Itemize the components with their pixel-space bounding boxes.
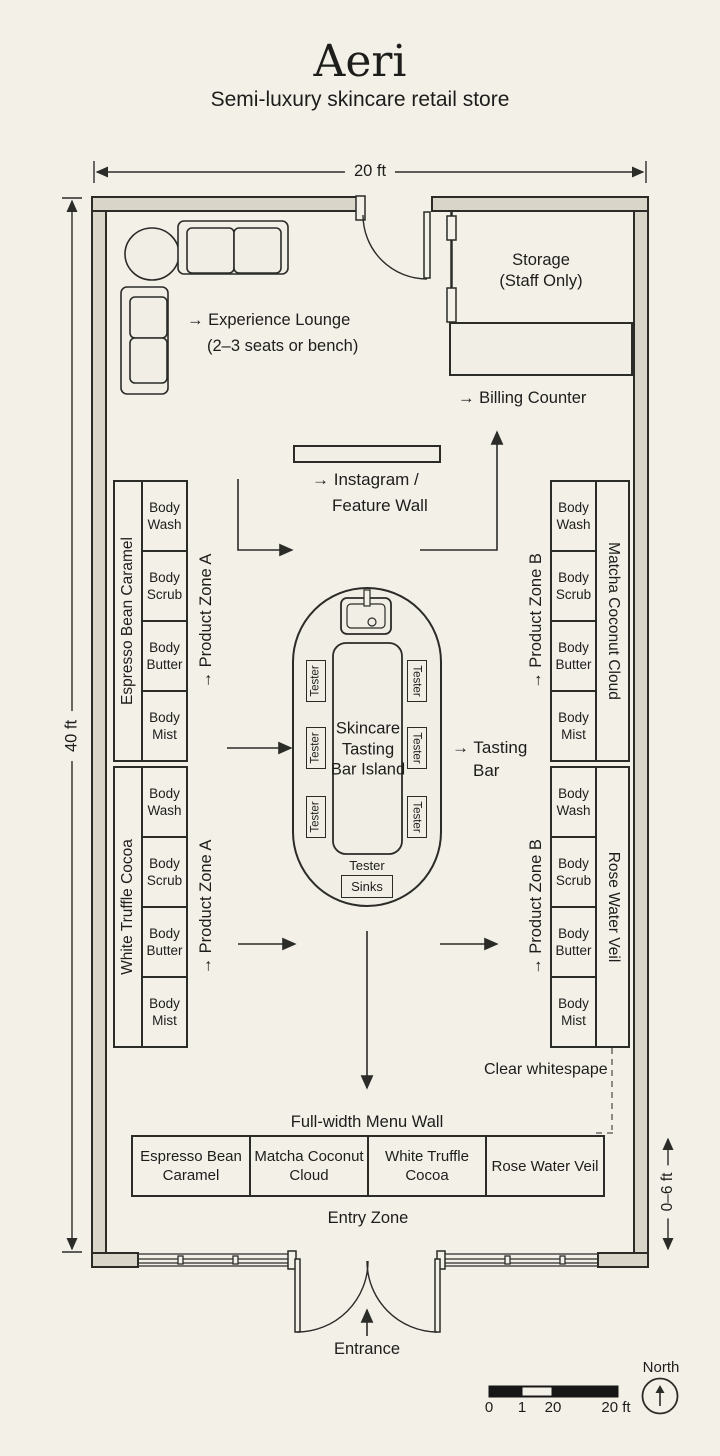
experience-lounge-line1: → Experience Lounge: [187, 307, 358, 333]
product-zone-b-label-bottom: → Product Zone B: [523, 839, 549, 975]
menu-wall-cell: Espresso Bean Caramel: [133, 1137, 249, 1195]
brand-column: Matcha Coconut Cloud: [595, 482, 628, 760]
shelf-cell: Body Wash: [552, 482, 595, 550]
shelf-cell: Body Butter: [552, 620, 595, 690]
wall-bottom-left-block: [92, 1253, 138, 1267]
shelf-cell: Body Butter: [552, 906, 595, 976]
island-label-line3: Bar Island: [331, 759, 405, 780]
brand-column: White Truffle Cocoa: [115, 768, 143, 1046]
experience-lounge-label: → Experience Lounge (2–3 seats or bench): [187, 307, 358, 359]
scale-bar: [489, 1386, 618, 1397]
experience-lounge-line2: (2–3 seats or bench): [207, 333, 358, 359]
page-title: Aeri: [314, 38, 407, 86]
storage-line1: Storage: [499, 250, 582, 271]
scale-tick-20ft: 20 ft: [601, 1399, 630, 1416]
feature-wall-shape: [294, 446, 440, 462]
product-zone-b-label-top: → Product Zone B: [523, 553, 549, 689]
tester-label: Tester: [411, 801, 423, 832]
sofa-cushion: [187, 228, 234, 273]
feature-wall-line2: Feature Wall: [332, 493, 428, 519]
sofa-cushion: [130, 297, 167, 338]
brand-label: Rose Water Veil: [604, 852, 622, 963]
shelf-cell: Body Scrub: [143, 550, 186, 620]
tasting-bar-label: → Tasting Bar: [452, 736, 527, 782]
menu-wall-cell: Rose Water Veil: [485, 1137, 603, 1195]
shelf-cell: Body Mist: [552, 976, 595, 1046]
flow-arrow-lounge-to-right: [238, 479, 292, 550]
tasting-bar-line2: Bar: [473, 759, 527, 782]
shelf-cell: Body Butter: [143, 620, 186, 690]
wall-left: [92, 197, 106, 1267]
tester-label: Tester: [310, 801, 322, 832]
tester-label: Tester: [411, 665, 423, 696]
shelf-cell: Body Wash: [143, 768, 186, 836]
shelf-unit-matcha-coconut-cloud: Body Wash Body Scrub Body Butter Body Mi…: [550, 480, 630, 762]
tester-box: Tester: [306, 796, 326, 838]
storage-door-jamb-1: [447, 216, 456, 240]
shelf-cell: Body Scrub: [552, 836, 595, 906]
product-zone-a-label-bottom: → Product Zone A: [193, 840, 219, 975]
tester-box: Tester: [407, 796, 427, 838]
storage-room: [447, 211, 632, 375]
brand-column: Espresso Bean Caramel: [115, 482, 143, 760]
shelf-cell: Body Scrub: [552, 550, 595, 620]
shelf-cell: Body Scrub: [143, 836, 186, 906]
scale-tick-0: 0: [485, 1399, 493, 1416]
shelf-unit-rose-water-veil: Body Wash Body Scrub Body Butter Body Mi…: [550, 766, 630, 1048]
shelf-unit-espresso-bean-caramel: Espresso Bean Caramel Body Wash Body Scr…: [113, 480, 188, 762]
brand-label: Espresso Bean Caramel: [119, 537, 137, 705]
brand-label: Matcha Coconut Cloud: [604, 542, 622, 700]
service-door: [356, 196, 430, 279]
tester-box: Tester: [306, 727, 326, 769]
shelf-cells: Body Wash Body Scrub Body Butter Body Mi…: [143, 768, 186, 1046]
wall-bottom-right-block: [598, 1253, 648, 1267]
feature-wall-line1: → Instagram /: [312, 467, 428, 493]
menu-wall-cell: Matcha Coconut Cloud: [249, 1137, 367, 1195]
scale-tick-20: 20: [545, 1399, 562, 1416]
wall-top-right-segment: [432, 197, 648, 211]
storefront-window-right: [437, 1251, 598, 1269]
shelf-cell: Body Mist: [552, 690, 595, 760]
shelf-cells: Body Wash Body Scrub Body Butter Body Mi…: [552, 482, 595, 760]
tester-box: Tester: [407, 727, 427, 769]
tester-sinks-caption: Tester: [349, 858, 384, 873]
door-swing-arc-top: [363, 215, 427, 279]
billing-counter-label: → Billing Counter: [458, 385, 586, 411]
storage-label: Storage (Staff Only): [499, 250, 582, 292]
storage-line2: (Staff Only): [499, 271, 582, 292]
door-leaf-top: [424, 212, 430, 278]
tester-box: Tester: [306, 660, 326, 702]
wall-right: [634, 197, 648, 1267]
menu-wall-heading: Full-width Menu Wall: [291, 1109, 444, 1135]
brand-label: White Truffle Cocoa: [119, 839, 137, 975]
menu-wall: Espresso Bean Caramel Matcha Coconut Clo…: [131, 1135, 605, 1197]
scale-bar-white-segment: [523, 1388, 552, 1396]
round-table: [125, 228, 179, 280]
tester-label: Tester: [310, 665, 322, 696]
shelf-unit-white-truffle-cocoa: White Truffle Cocoa Body Wash Body Scrub…: [113, 766, 188, 1048]
island-label: Skincare Tasting Bar Island: [331, 718, 405, 780]
clear-whitespace-note: Clear whitespape: [484, 1061, 608, 1079]
floor-plan-page: Aeri Semi-luxury skincare retail store 2…: [0, 0, 720, 1456]
scale-bar-body: [489, 1386, 618, 1397]
shelf-cell: Body Mist: [143, 690, 186, 760]
north-label: North: [643, 1359, 680, 1376]
shelf-cells: Body Wash Body Scrub Body Butter Body Mi…: [552, 768, 595, 1046]
tester-label: Tester: [411, 732, 423, 763]
sofa-cushion: [130, 338, 167, 383]
storage-door-jamb-2: [447, 288, 456, 322]
dim-height-label: 40 ft: [63, 711, 82, 761]
island-label-line1: Skincare: [331, 718, 405, 739]
entry-zone-label: Entry Zone: [328, 1205, 409, 1231]
shelf-cell: Body Mist: [143, 976, 186, 1046]
menu-wall-cell: White Truffle Cocoa: [367, 1137, 485, 1195]
door-swing-arc-right: [367, 1261, 437, 1332]
shelf-cell: Body Wash: [143, 482, 186, 550]
wall-top-left-segment: [92, 197, 362, 211]
dim-width-label: 20 ft: [345, 162, 395, 181]
feature-wall-label: → Instagram / Feature Wall: [312, 467, 428, 519]
north-arrow-head: [656, 1385, 665, 1393]
dim-entry-label: 0–6 ft: [659, 1166, 677, 1219]
entrance-label: Entrance: [334, 1336, 400, 1362]
door-swing-arc-left: [297, 1261, 368, 1332]
tasting-bar-line1: → Tasting: [452, 736, 527, 759]
north-indicator: [643, 1379, 678, 1414]
billing-counter: [450, 323, 632, 375]
island-label-line2: Tasting: [331, 739, 405, 760]
brand-column: Rose Water Veil: [595, 768, 628, 1046]
door-leaf-left: [295, 1259, 300, 1332]
tester-label: Tester: [310, 732, 322, 763]
shelf-cells: Body Wash Body Scrub Body Butter Body Mi…: [143, 482, 186, 760]
product-zone-a-label-top: → Product Zone A: [193, 554, 219, 689]
page-subtitle: Semi-luxury skincare retail store: [211, 88, 510, 112]
tester-box: Tester: [407, 660, 427, 702]
door-leaf-right: [435, 1259, 440, 1332]
sinks-box: Sinks: [341, 875, 393, 898]
scale-tick-1: 1: [518, 1399, 526, 1416]
shelf-cell: Body Butter: [143, 906, 186, 976]
sofa-cushion: [234, 228, 281, 273]
storefront-window-left: [138, 1251, 296, 1269]
shelf-cell: Body Wash: [552, 768, 595, 836]
sink-faucet: [364, 590, 370, 606]
